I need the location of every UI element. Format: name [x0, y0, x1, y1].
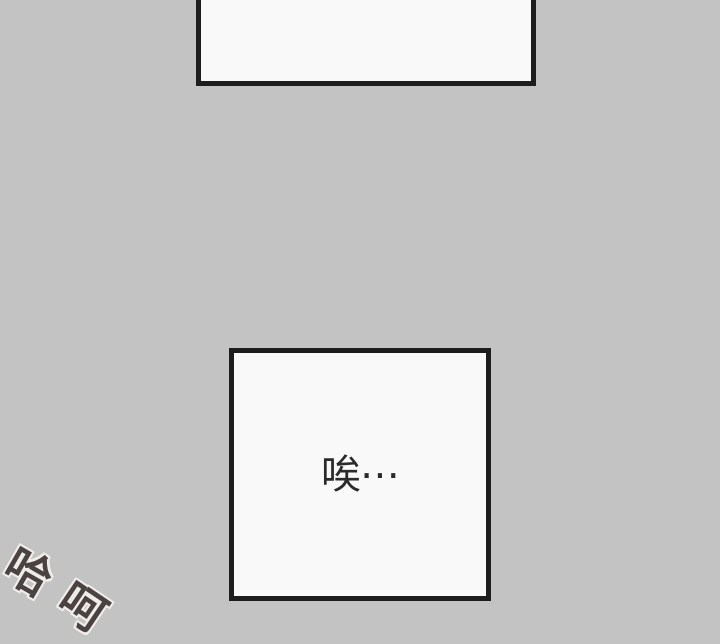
comic-page: 唉⋯ 哈 呵: [0, 0, 720, 608]
sfx-char-ha: 哈: [0, 541, 60, 604]
sfx-text: 哈 呵: [0, 541, 115, 636]
dialog-text: 唉⋯: [321, 455, 399, 495]
sfx-char-he: 呵: [50, 575, 114, 639]
comic-panel-top: [196, 0, 536, 86]
comic-panel-dialog: 唉⋯: [229, 348, 491, 601]
